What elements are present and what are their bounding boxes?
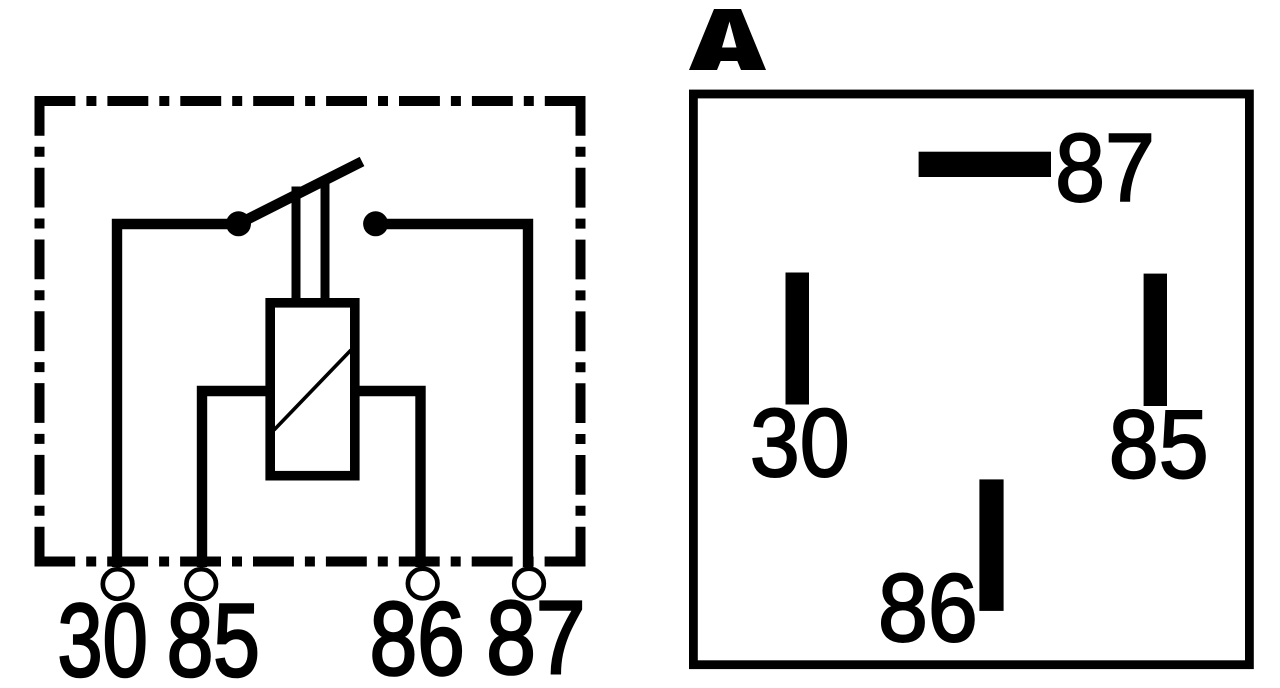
svg-text:85: 85 [1109,391,1209,499]
svg-text:85: 85 [167,582,260,688]
svg-text:87: 87 [486,579,585,688]
svg-text:86: 86 [370,582,465,688]
svg-text:87: 87 [1055,114,1155,222]
svg-text:30: 30 [750,389,850,497]
svg-text:86: 86 [878,554,978,662]
svg-text:30: 30 [57,582,147,688]
